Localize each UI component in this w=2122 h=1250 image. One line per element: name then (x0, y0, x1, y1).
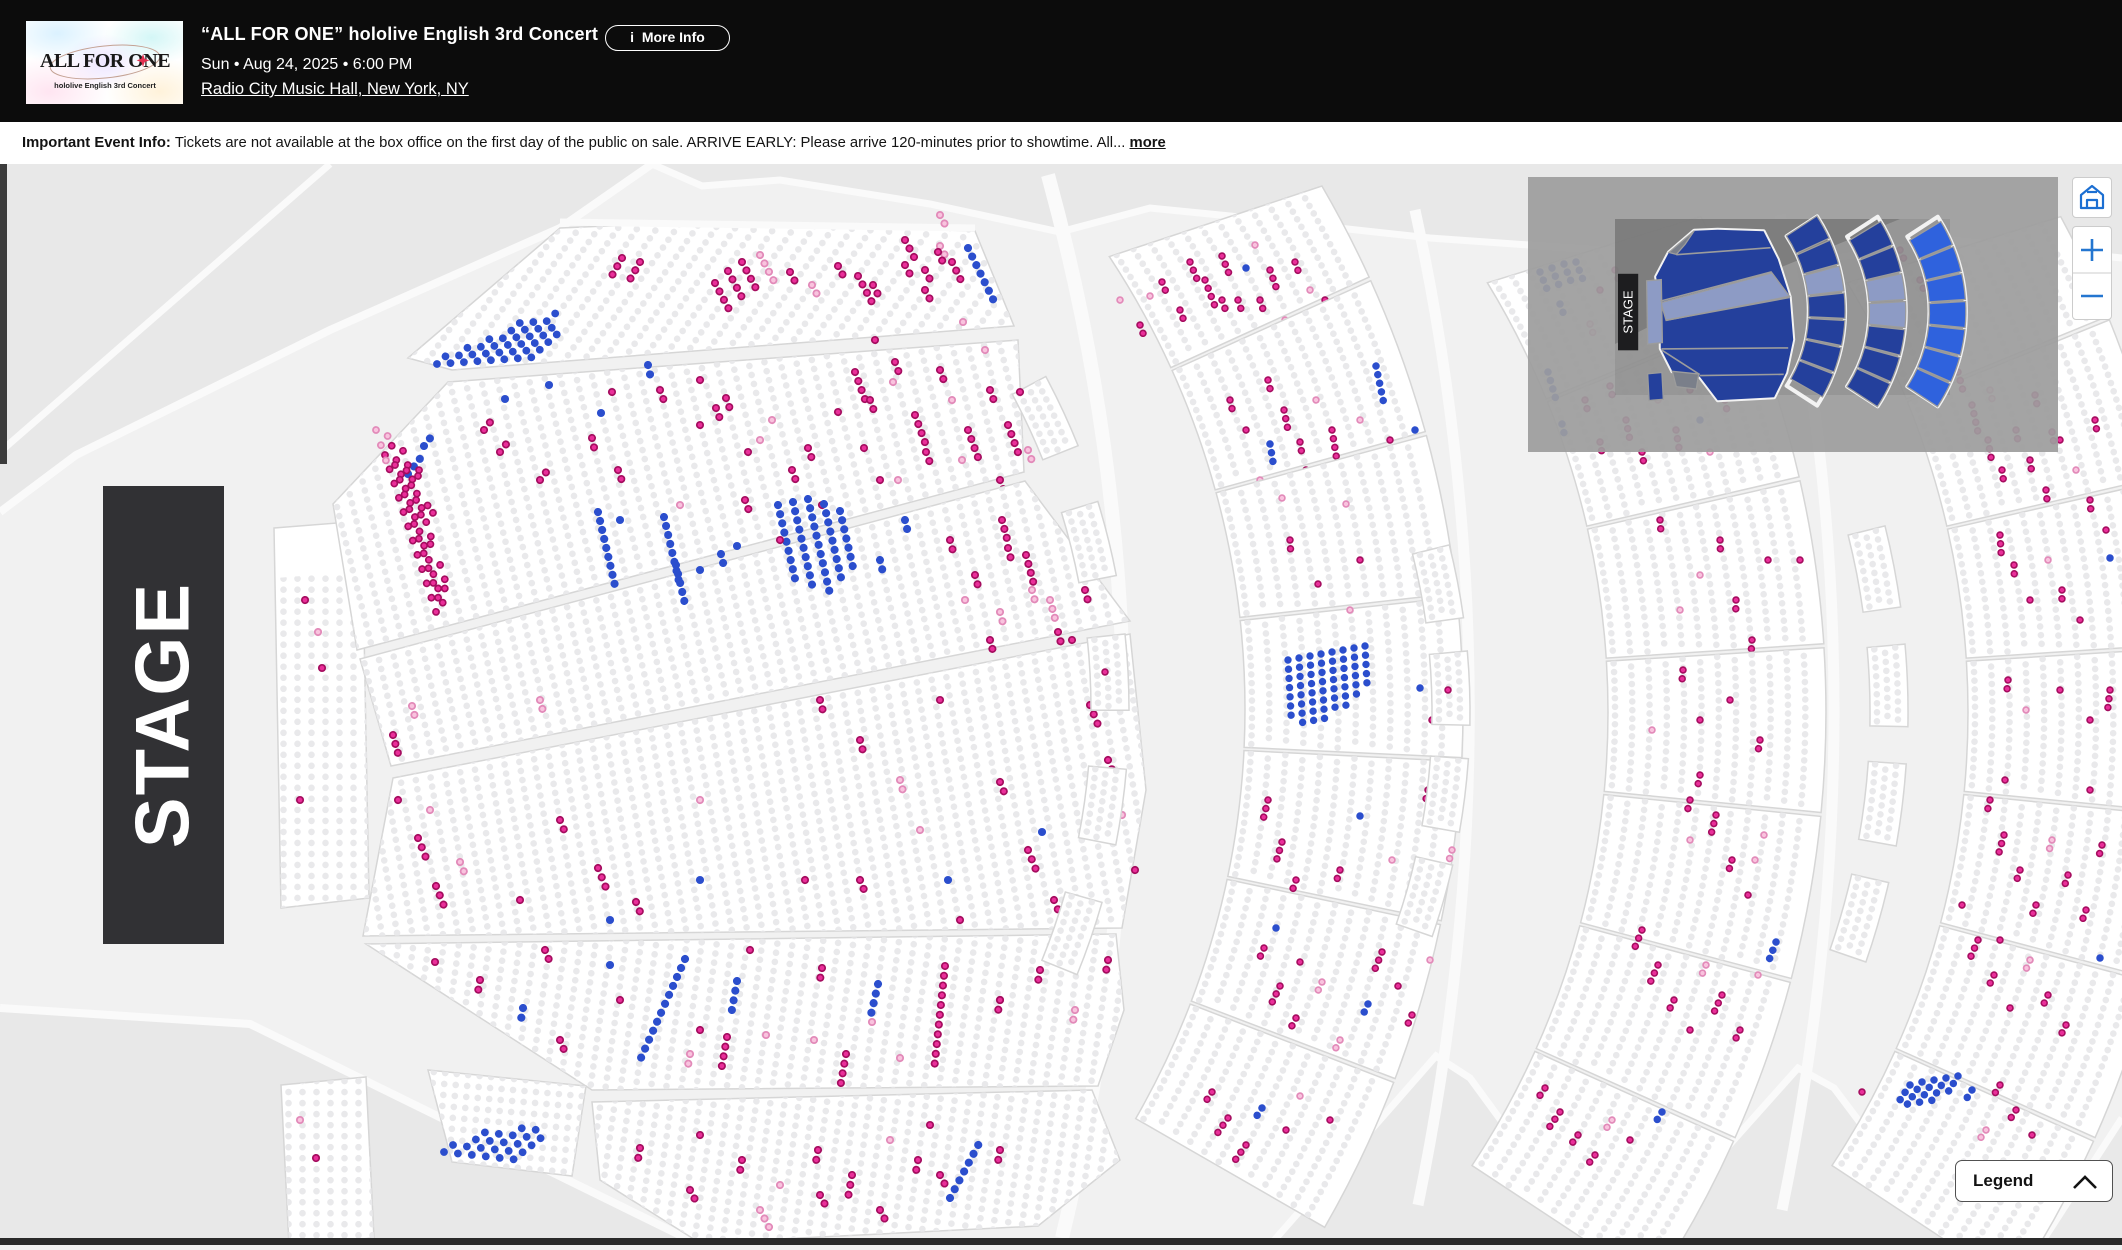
svg-text:STAGE: STAGE (121, 582, 206, 848)
svg-text:ALL FOR ONE: ALL FOR ONE (40, 50, 170, 72)
svg-text:hololive English 3rd Concert: hololive English 3rd Concert (54, 81, 156, 90)
svg-text:STAGE: STAGE (1621, 290, 1636, 333)
